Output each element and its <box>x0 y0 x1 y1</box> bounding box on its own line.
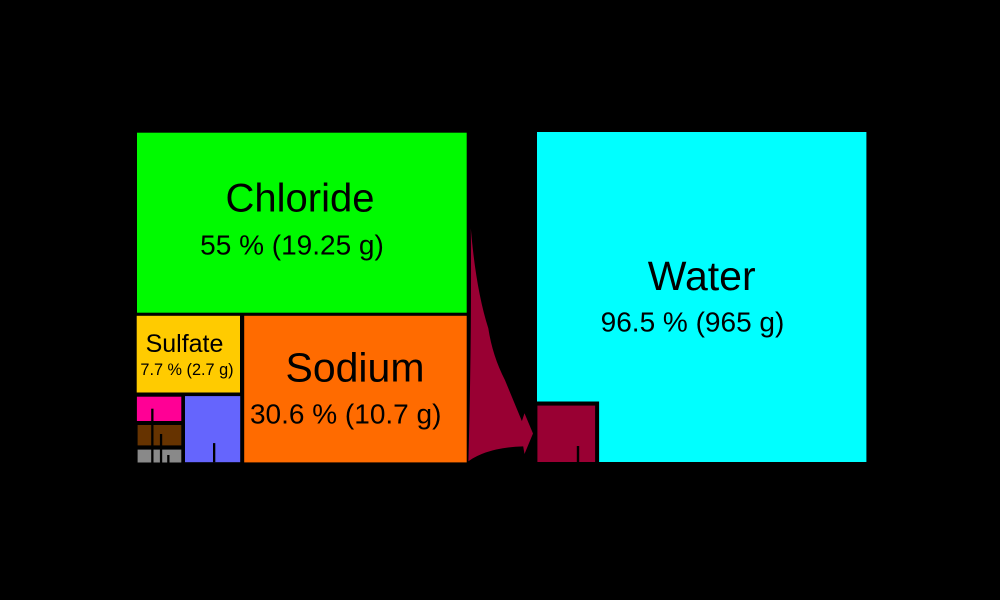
svg-text:Chloride: Chloride <box>226 177 375 221</box>
svg-text:Sodium: Sodium <box>285 344 424 390</box>
svg-text:Water: Water <box>648 253 756 299</box>
svg-text:96.5 % (965 g): 96.5 % (965 g) <box>601 307 785 338</box>
svg-text:7.7 % (2.7 g): 7.7 % (2.7 g) <box>140 361 233 379</box>
svg-text:30.6 % (10.7 g): 30.6 % (10.7 g) <box>250 398 441 429</box>
svg-text:55 % (19.25 g): 55 % (19.25 g) <box>200 230 384 261</box>
svg-text:Sulfate: Sulfate <box>146 330 224 358</box>
